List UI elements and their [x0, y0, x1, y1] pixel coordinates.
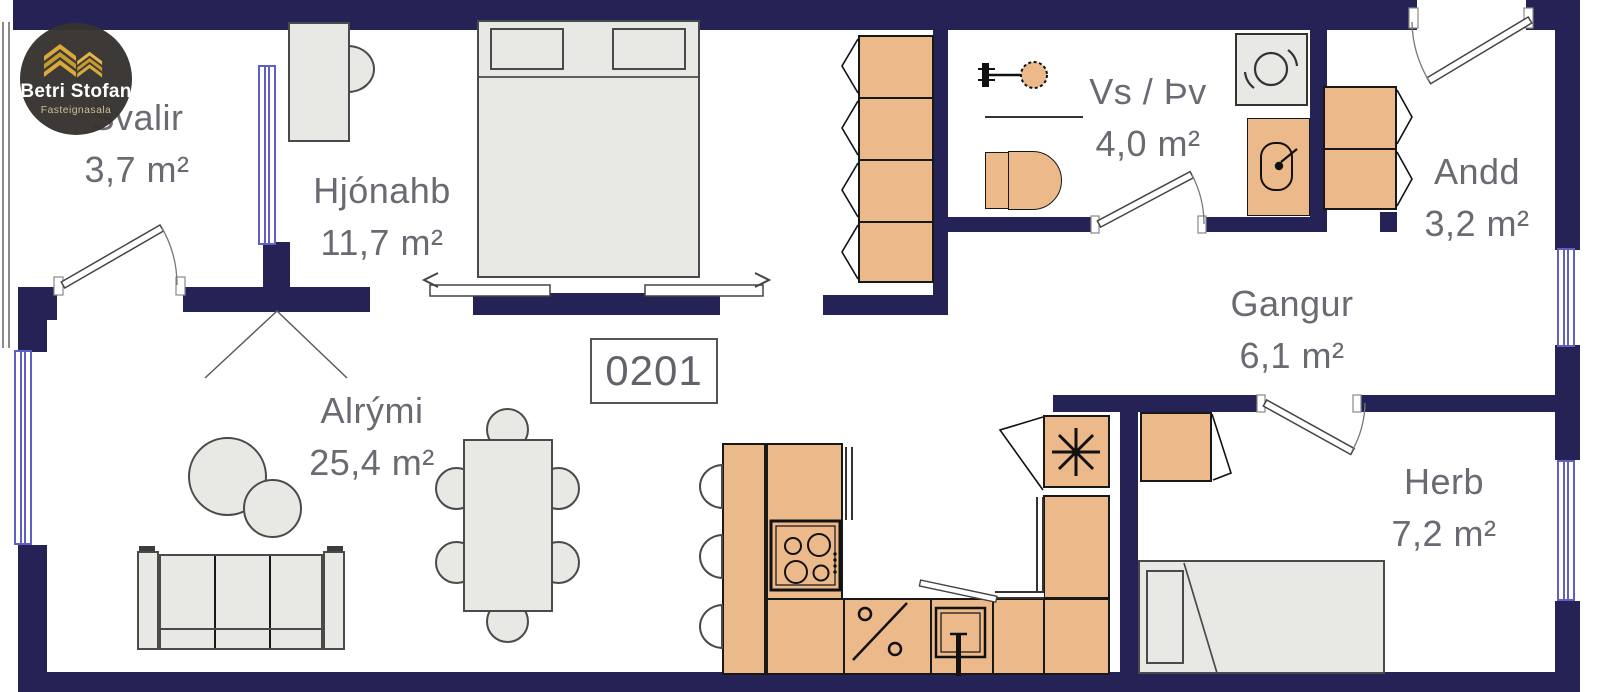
dishwasher-icon: [853, 603, 907, 660]
unit-number-badge: 0201: [590, 338, 718, 404]
room-name: Vs / Þv: [1089, 66, 1207, 118]
shower-icon: [978, 62, 1083, 117]
sliding-door: [424, 273, 769, 296]
room-area: 7,2 m²: [1391, 508, 1496, 560]
herb-door: [1257, 395, 1365, 455]
room-label-herb: Herb 7,2 m²: [1391, 456, 1496, 560]
room-name: Andd: [1424, 146, 1529, 198]
room-area: 25,4 m²: [309, 437, 435, 489]
room-label-andd: Andd 3,2 m²: [1424, 146, 1529, 250]
bed-fold-line: [1184, 563, 1217, 673]
balcony-door: [54, 225, 185, 295]
room-label-alrymi: Alrými 25,4 m²: [309, 385, 435, 489]
room-name: Herb: [1391, 456, 1496, 508]
room-name: Alrými: [309, 385, 435, 437]
kitchen-sink-icon: [936, 608, 985, 676]
unit-number: 0201: [605, 347, 702, 395]
logo-building-icon: [40, 43, 112, 81]
room-area: 4,0 m²: [1089, 118, 1207, 170]
washer-drum-icon: [1245, 50, 1297, 88]
stove-icon: [771, 521, 840, 590]
cabinet-door: [919, 580, 997, 602]
annotation-lines: [205, 311, 347, 378]
room-area: 11,7 m²: [313, 217, 451, 269]
room-area: 3,2 m²: [1424, 198, 1529, 250]
room-area: 6,1 m²: [1230, 330, 1353, 382]
room-area: 3,7 m²: [84, 144, 189, 196]
bathroom-door: [1091, 172, 1206, 233]
freezer-snowflake-icon: [1052, 428, 1100, 476]
room-label-hjonahb: Hjónahb 11,7 m²: [313, 165, 451, 269]
room-name: Hjónahb: [313, 165, 451, 217]
entrance-door: [1409, 8, 1533, 84]
logo-subtitle: Fasteignasala: [41, 104, 112, 116]
basin-icon: [1261, 143, 1297, 190]
room-label-gangur: Gangur 6,1 m²: [1230, 278, 1353, 382]
floor-plan: Svalir 3,7 m² Hjónahb 11,7 m² Vs / Þv 4,…: [0, 0, 1600, 692]
room-label-vs-pv: Vs / Þv 4,0 m²: [1089, 66, 1207, 170]
room-name: Gangur: [1230, 278, 1353, 330]
logo-title: Betri Stofan: [20, 81, 131, 103]
line-art-overlay: [0, 0, 1600, 692]
agency-logo: Betri Stofan Fasteignasala: [20, 23, 132, 135]
